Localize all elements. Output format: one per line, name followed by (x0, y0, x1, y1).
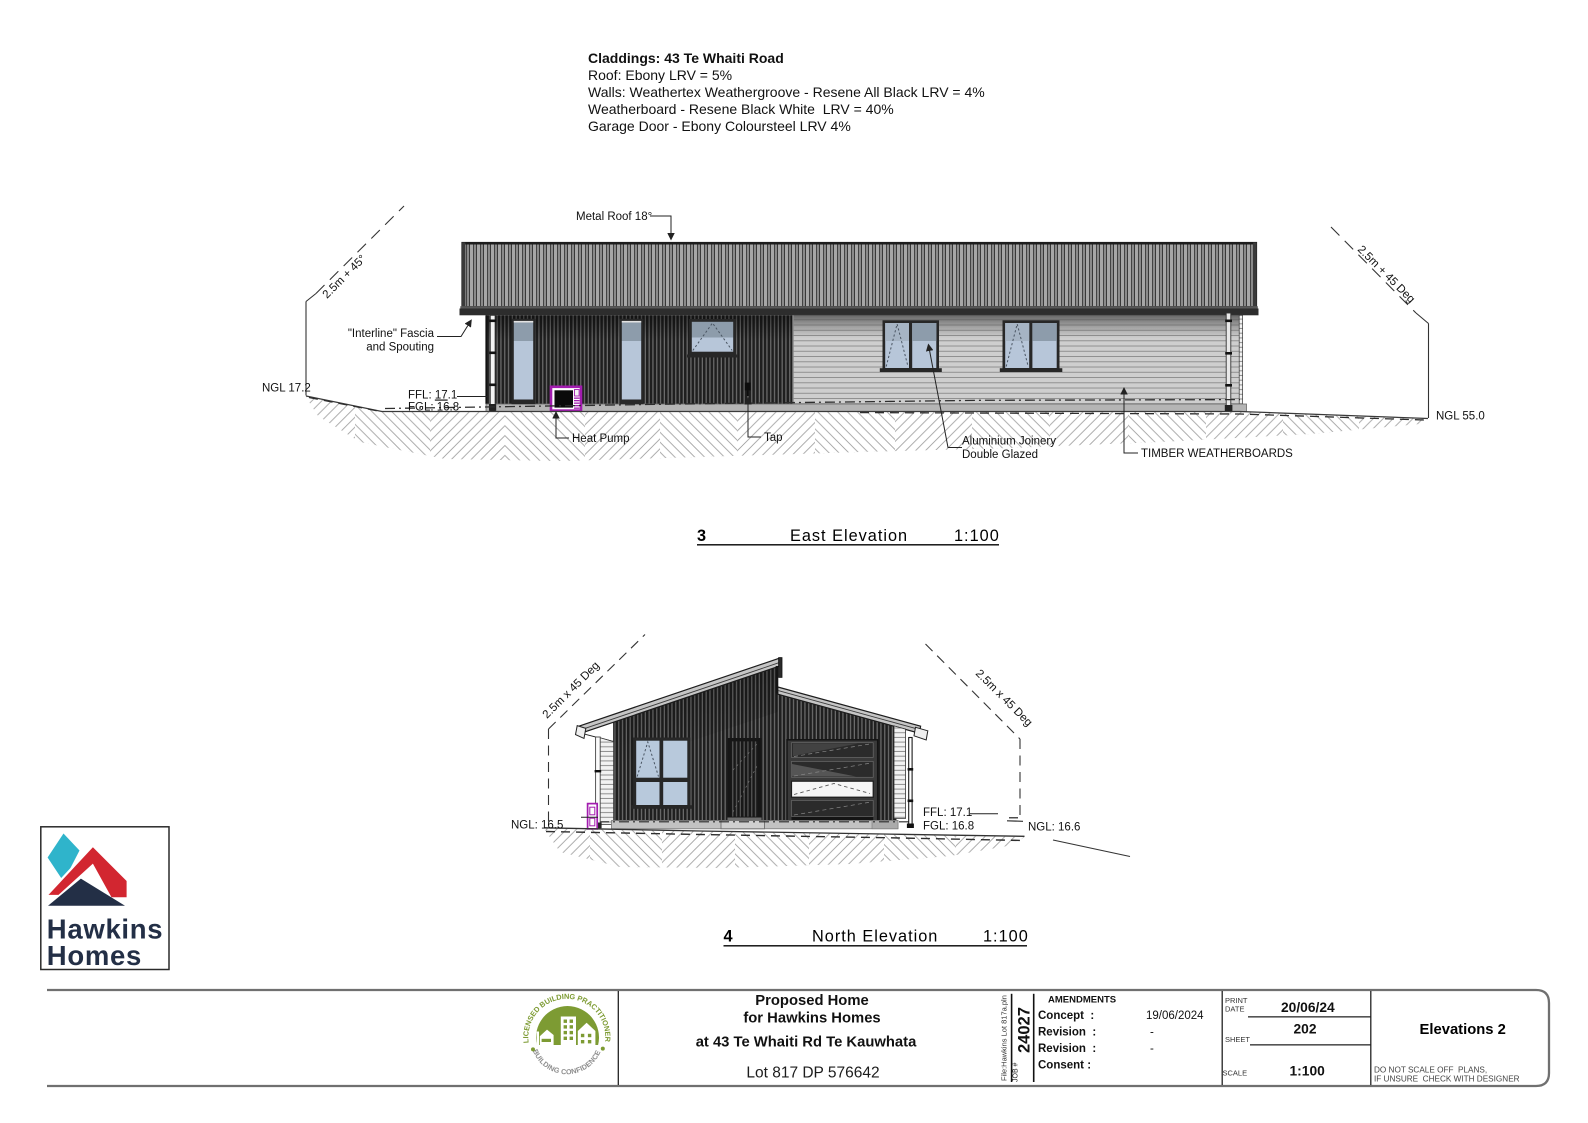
svg-text:-: - (1150, 1043, 1154, 1055)
svg-text:BUILDING CONFIDENCE: BUILDING CONFIDENCE (531, 1048, 603, 1077)
svg-text:20/06/24: 20/06/24 (1281, 1000, 1335, 1015)
svg-text:1:100: 1:100 (1290, 1064, 1326, 1079)
svg-text:Lot 817 DP 576642: Lot 817 DP 576642 (746, 1065, 879, 1082)
svg-text:19/06/2024: 19/06/2024 (1146, 1010, 1204, 1022)
svg-text:DATE: DATE (1225, 1005, 1244, 1014)
svg-text:DO NOT SCALE OFF PLANS,: DO NOT SCALE OFF PLANS, (1374, 1066, 1487, 1075)
svg-text:at 43 Te Whaiti Rd Te Kauwhata: at 43 Te Whaiti Rd Te Kauwhata (696, 1035, 917, 1051)
svg-text:AMENDMENTS: AMENDMENTS (1048, 995, 1116, 1006)
svg-text:-: - (1150, 1027, 1154, 1039)
svg-text:202: 202 (1294, 1022, 1317, 1037)
svg-text:Revision :: Revision : (1038, 1043, 1096, 1055)
svg-text:Elevations 2: Elevations 2 (1420, 1022, 1506, 1038)
svg-text:for Hawkins Homes: for Hawkins Homes (743, 1011, 880, 1027)
svg-text:File:Hawkins Lot 817a.pln: File:Hawkins Lot 817a.pln (1000, 995, 1009, 1081)
svg-text:Revision :: Revision : (1038, 1027, 1096, 1039)
svg-text:Concept :: Concept : (1038, 1010, 1094, 1022)
svg-text:SHEET: SHEET (1225, 1035, 1250, 1044)
svg-text:SCALE: SCALE (1223, 1069, 1248, 1078)
svg-text:IF UNSURE CHECK WITH DESIGNER: IF UNSURE CHECK WITH DESIGNER (1374, 1075, 1520, 1084)
svg-text:24027: 24027 (1016, 1007, 1034, 1053)
svg-text:Proposed Home: Proposed Home (755, 993, 868, 1009)
svg-text:JOB #: JOB # (1013, 1062, 1020, 1082)
svg-text:Consent :: Consent : (1038, 1060, 1091, 1072)
